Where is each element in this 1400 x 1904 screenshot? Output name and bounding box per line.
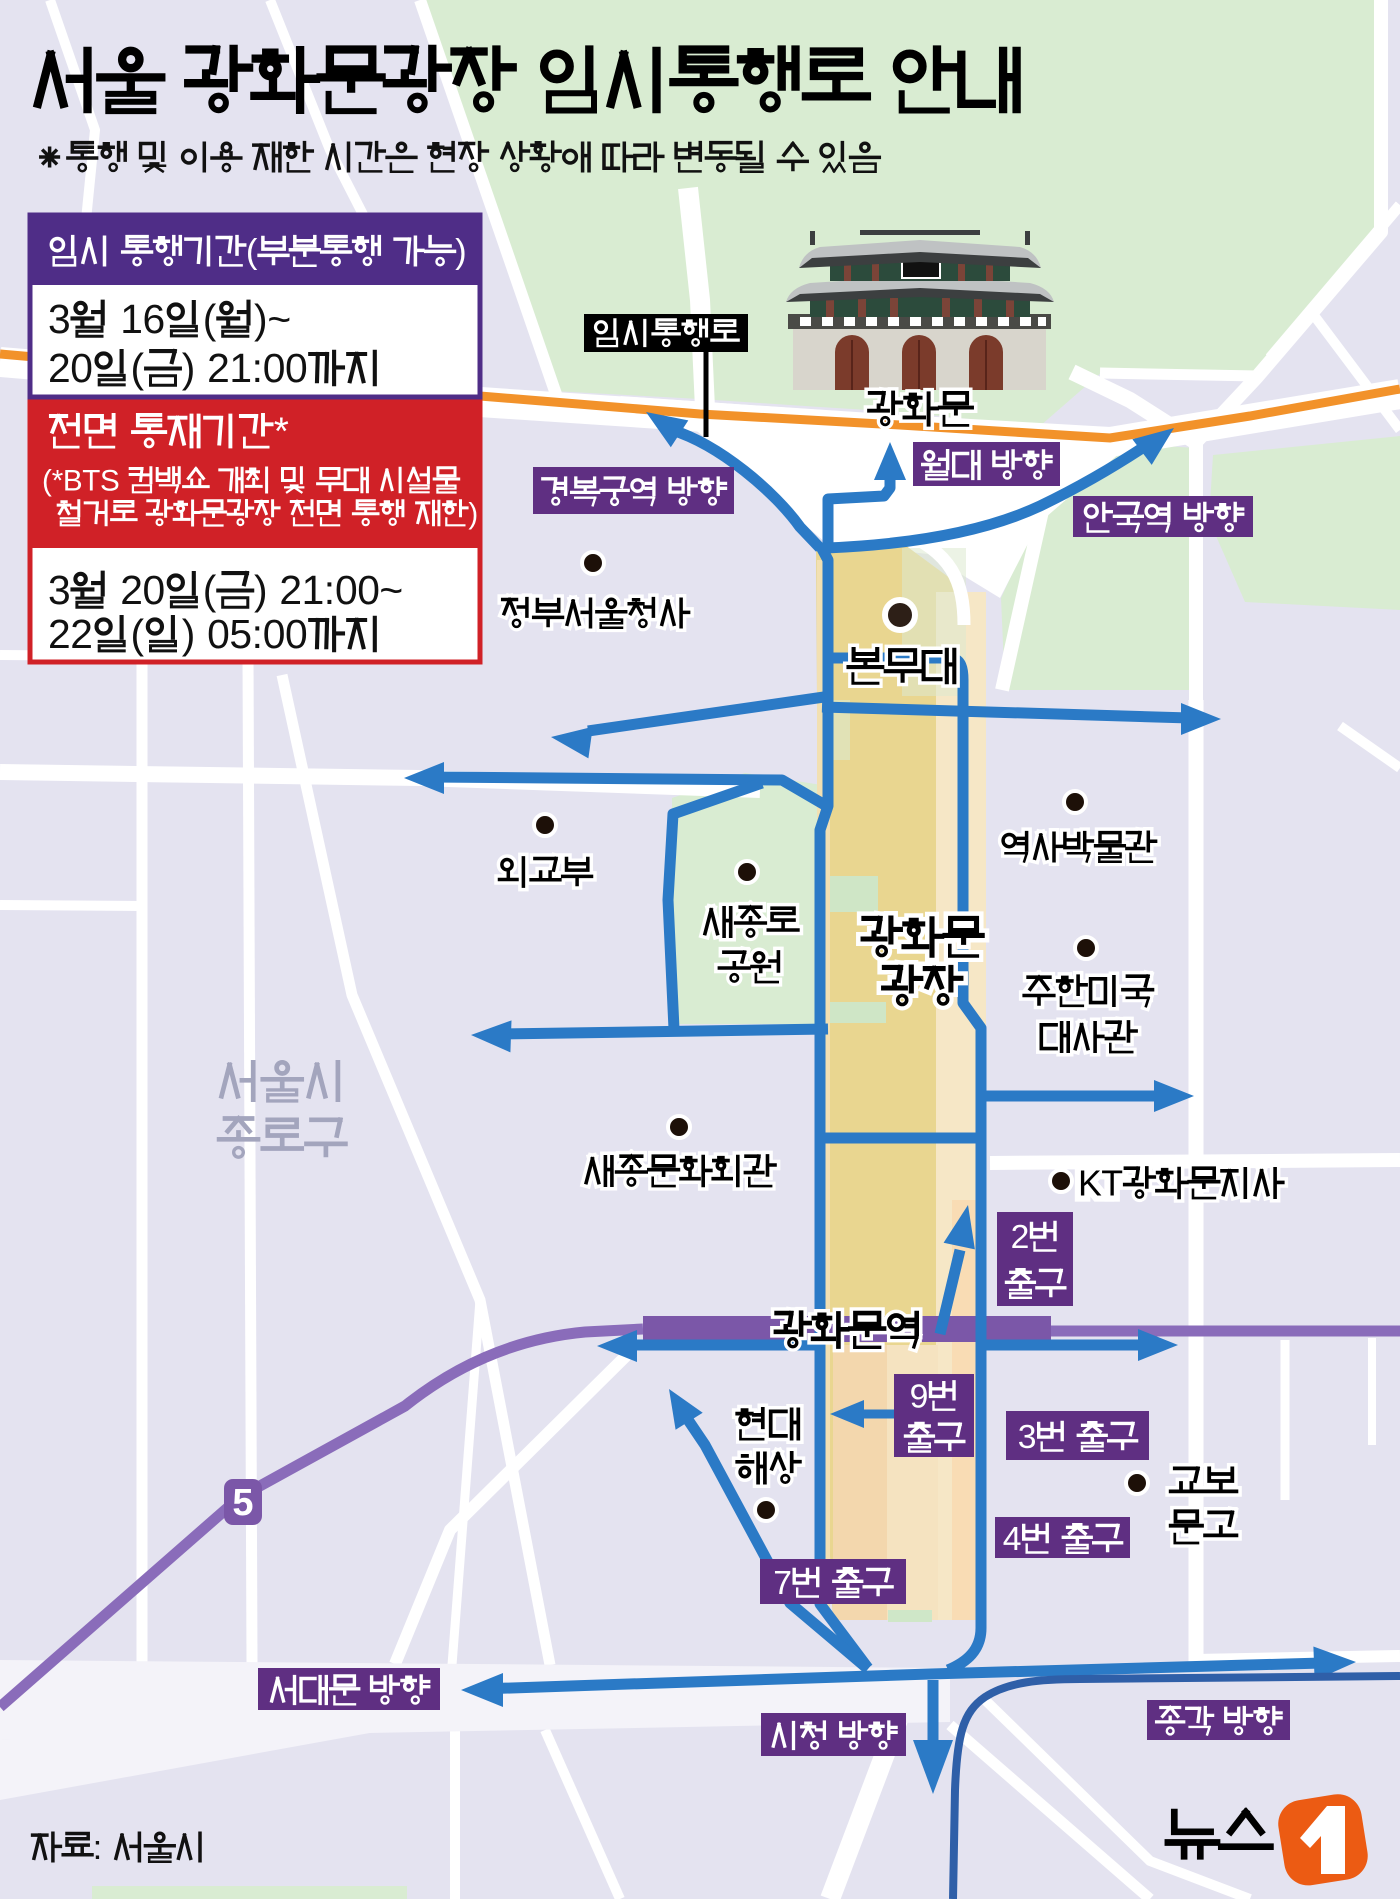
svg-text:T: T bbox=[1101, 1163, 1123, 1203]
svg-text:0: 0 bbox=[357, 567, 380, 613]
svg-text:): ) bbox=[182, 611, 196, 657]
svg-text:0: 0 bbox=[285, 345, 308, 391]
svg-text:2: 2 bbox=[279, 567, 302, 613]
svg-text:(: ( bbox=[203, 567, 217, 613]
svg-text:1: 1 bbox=[229, 345, 252, 391]
svg-text::: : bbox=[324, 567, 335, 613]
svg-text:0: 0 bbox=[143, 567, 166, 613]
svg-text:5: 5 bbox=[232, 1482, 253, 1524]
svg-text:): ) bbox=[468, 497, 478, 530]
svg-text:~: ~ bbox=[267, 296, 291, 342]
svg-text:S: S bbox=[100, 464, 120, 497]
svg-text:2: 2 bbox=[48, 611, 71, 657]
svg-text:0: 0 bbox=[70, 345, 93, 391]
svg-text:(: ( bbox=[246, 233, 258, 271]
svg-text:): ) bbox=[455, 233, 467, 271]
svg-text:2: 2 bbox=[207, 345, 230, 391]
svg-text:*: * bbox=[52, 464, 64, 497]
svg-text:T: T bbox=[82, 464, 100, 497]
svg-text::: : bbox=[93, 1829, 103, 1867]
svg-text:0: 0 bbox=[263, 611, 286, 657]
svg-text:0: 0 bbox=[207, 611, 230, 657]
svg-text:4: 4 bbox=[1003, 1520, 1022, 1558]
svg-text:0: 0 bbox=[263, 345, 286, 391]
svg-text:3: 3 bbox=[48, 296, 71, 342]
svg-text:~: ~ bbox=[379, 567, 403, 613]
svg-text:): ) bbox=[182, 345, 196, 391]
svg-text:3: 3 bbox=[48, 567, 71, 613]
svg-text:7: 7 bbox=[773, 1564, 792, 1602]
svg-text:9: 9 bbox=[910, 1378, 929, 1416]
svg-text:(: ( bbox=[131, 611, 145, 657]
svg-text:0: 0 bbox=[335, 567, 358, 613]
svg-text:1: 1 bbox=[120, 296, 143, 342]
svg-text:*: * bbox=[274, 411, 289, 454]
svg-text:1: 1 bbox=[302, 567, 325, 613]
svg-text:(: ( bbox=[203, 296, 217, 342]
svg-text:2: 2 bbox=[70, 611, 93, 657]
svg-text:6: 6 bbox=[143, 296, 166, 342]
svg-text:2: 2 bbox=[48, 345, 71, 391]
svg-text:): ) bbox=[254, 567, 268, 613]
svg-text::: : bbox=[252, 345, 263, 391]
svg-text::: : bbox=[252, 611, 263, 657]
svg-text:(: ( bbox=[131, 345, 145, 391]
svg-text:): ) bbox=[254, 296, 268, 342]
svg-text:2: 2 bbox=[120, 567, 143, 613]
svg-text:5: 5 bbox=[229, 611, 252, 657]
svg-text:0: 0 bbox=[285, 611, 308, 657]
svg-text:3: 3 bbox=[1018, 1418, 1037, 1456]
svg-text:2: 2 bbox=[1011, 1218, 1030, 1256]
svg-text:K: K bbox=[1078, 1163, 1102, 1203]
svg-text:B: B bbox=[63, 464, 83, 497]
svg-text:(: ( bbox=[42, 464, 52, 497]
